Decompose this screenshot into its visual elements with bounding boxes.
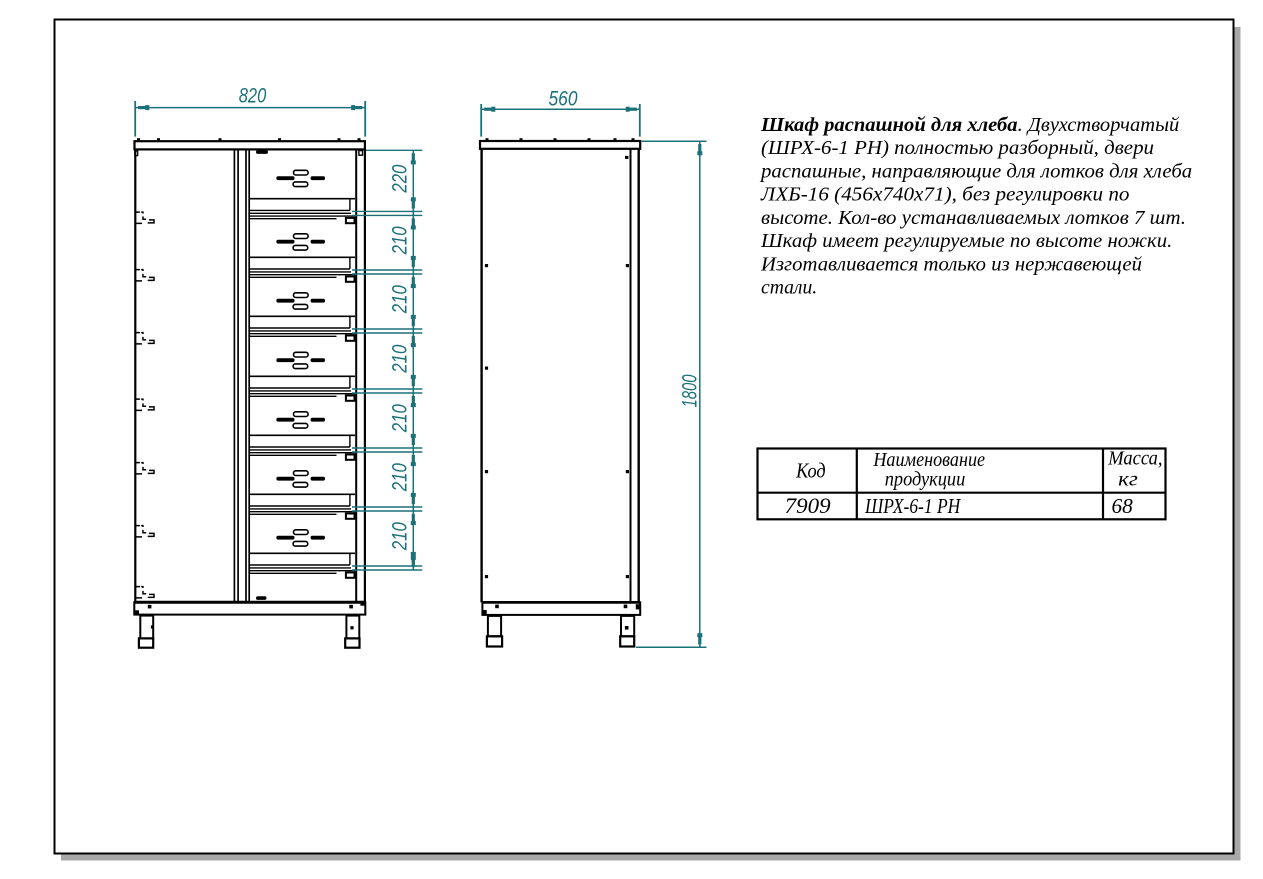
svg-text:560: 560 <box>549 87 578 110</box>
svg-text:210: 210 <box>389 404 412 433</box>
svg-text:высоте. Кол-во устанавливаемых: высоте. Кол-во устанавливаемых лотков 7 … <box>761 208 1186 229</box>
svg-text:7909: 7909 <box>785 493 831 518</box>
svg-text:220: 220 <box>389 164 412 193</box>
svg-text:210: 210 <box>389 226 412 255</box>
svg-text:Шкаф имеет регулируемые по выс: Шкаф имеет регулируемые по высоте ножки. <box>760 231 1172 252</box>
svg-text:ШРХ-6-1 РН: ШРХ-6-1 РН <box>864 494 962 518</box>
svg-text:Изготавливается только из нерж: Изготавливается только из нержавеющей <box>760 254 1142 275</box>
svg-text:кг: кг <box>1118 469 1138 491</box>
svg-text:(ШРХ-6-1 РН) полностью разборн: (ШРХ-6-1 РН) полностью разборный, двери <box>761 138 1154 159</box>
svg-text:68: 68 <box>1112 494 1134 518</box>
svg-text:Масса,: Масса, <box>1107 448 1162 470</box>
svg-text:1800: 1800 <box>679 374 702 407</box>
svg-text:ЛХБ-16 (456х740х71), без регул: ЛХБ-16 (456х740х71), без регулировки по <box>760 185 1130 206</box>
svg-text:210: 210 <box>389 463 412 492</box>
svg-text:распашные, направляющие для ло: распашные, направляющие для лотков для х… <box>759 161 1193 182</box>
svg-text:210: 210 <box>389 344 412 373</box>
svg-text:стали.: стали. <box>761 278 817 299</box>
svg-text:820: 820 <box>239 84 267 107</box>
svg-text:Код: Код <box>795 459 826 483</box>
svg-text:210: 210 <box>389 285 412 314</box>
svg-text:Шкаф распашной для хлеба. Двух: Шкаф распашной для хлеба. Двухстворчатый <box>760 115 1180 136</box>
svg-text:210: 210 <box>389 522 412 551</box>
svg-text:продукции: продукции <box>885 469 966 491</box>
